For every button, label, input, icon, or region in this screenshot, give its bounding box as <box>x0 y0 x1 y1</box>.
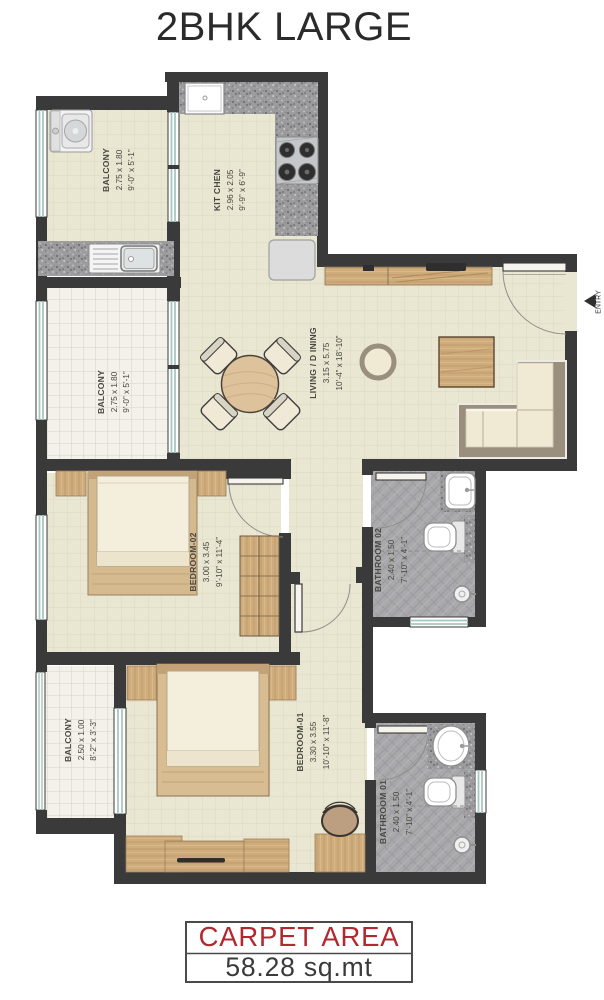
svg-text:2.96 x 2.05: 2.96 x 2.05 <box>226 169 235 210</box>
svg-text:10’-4” x 18’-10”: 10’-4” x 18’-10” <box>335 335 344 390</box>
svg-text:9’-10” x 11’-4”: 9’-10” x 11’-4” <box>215 537 224 587</box>
svg-text:2.40 x 1.50: 2.40 x 1.50 <box>387 539 396 580</box>
svg-text:9’-9” x 6’-9”: 9’-9” x 6’-9” <box>238 169 247 211</box>
svg-text:ENTRY: ENTRY <box>596 290 603 314</box>
svg-text:CARPET AREA: CARPET AREA <box>199 921 400 952</box>
svg-text:58.28 sq.mt: 58.28 sq.mt <box>225 952 372 982</box>
svg-text:BALCONY: BALCONY <box>101 148 111 192</box>
svg-text:3.15 x 5.75: 3.15 x 5.75 <box>322 342 331 383</box>
svg-text:2.50 x 1.00: 2.50 x 1.00 <box>77 719 86 760</box>
svg-text:8’-2” x 3’-3”: 8’-2” x 3’-3” <box>89 719 98 761</box>
svg-text:7’-10” x 4’-1”: 7’-10” x 4’-1” <box>400 537 409 583</box>
svg-text:7’-10” x 4’-1”: 7’-10” x 4’-1” <box>405 789 414 835</box>
svg-text:BEDROOM-01: BEDROOM-01 <box>295 712 305 771</box>
svg-text:BATHROOM 01: BATHROOM 01 <box>378 780 388 844</box>
svg-text:KIT CHEN: KIT CHEN <box>212 169 222 211</box>
svg-text:2.75 x 1.80: 2.75 x 1.80 <box>110 371 119 412</box>
svg-text:10’-10” x 11’-8”: 10’-10” x 11’-8” <box>322 715 331 770</box>
svg-text:3.00 x 3.45: 3.00 x 3.45 <box>202 541 211 582</box>
svg-text:2.40 x 1.50: 2.40 x 1.50 <box>392 791 401 832</box>
svg-text:BEDROOM-02: BEDROOM-02 <box>188 532 198 591</box>
svg-text:LIVING / D INING: LIVING / D INING <box>308 327 318 399</box>
svg-text:2.75 x 1.80: 2.75 x 1.80 <box>115 149 124 190</box>
svg-text:BATHROOM 02: BATHROOM 02 <box>373 528 383 592</box>
svg-text:9’-0” x 5’-1”: 9’-0” x 5’-1” <box>122 371 131 413</box>
svg-text:3.30 x 3.55: 3.30 x 3.55 <box>309 721 318 762</box>
svg-text:BALCONY: BALCONY <box>63 718 73 762</box>
svg-text:BALCONY: BALCONY <box>96 370 106 414</box>
svg-text:9’-0” x 5’-1”: 9’-0” x 5’-1” <box>127 149 136 191</box>
svg-text:2BHK LARGE: 2BHK LARGE <box>156 5 412 49</box>
